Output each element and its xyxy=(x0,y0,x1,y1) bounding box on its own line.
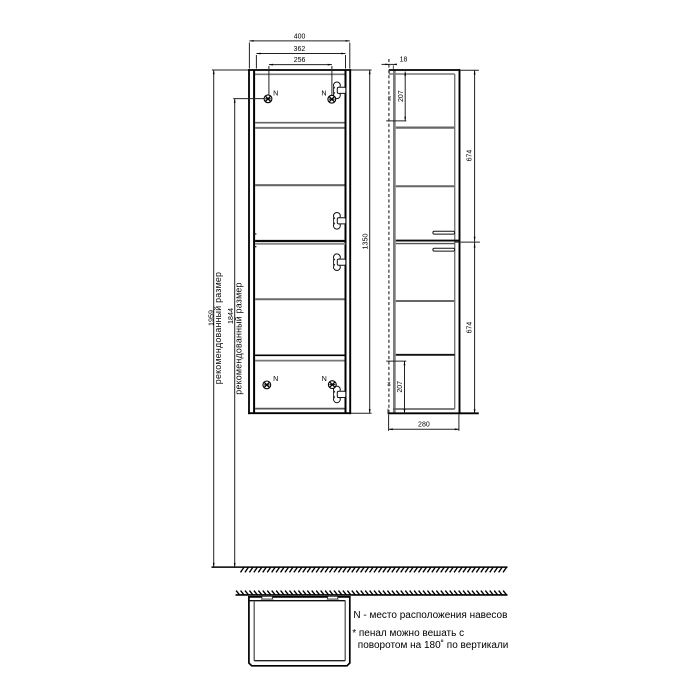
svg-text:N: N xyxy=(322,374,327,383)
svg-text:N: N xyxy=(273,374,278,383)
svg-text:N: N xyxy=(321,88,326,97)
svg-text:64: 64 xyxy=(387,95,392,101)
svg-text:674: 674 xyxy=(467,322,474,334)
svg-text:400: 400 xyxy=(294,33,306,40)
svg-text:207: 207 xyxy=(398,90,405,102)
svg-text:362: 362 xyxy=(294,46,306,53)
svg-text:рекомендованный размер: рекомендованный размер xyxy=(213,272,223,384)
svg-text:256: 256 xyxy=(294,57,306,64)
svg-text:* пенал можно вешать с: * пенал можно вешать с xyxy=(352,628,464,639)
svg-text:рекомендованный размер: рекомендованный размер xyxy=(233,282,243,394)
svg-text:N - место расположения навесов: N - место расположения навесов xyxy=(353,610,507,621)
svg-text:поворотом на 180˚ по вертикали: поворотом на 180˚ по вертикали xyxy=(358,639,509,651)
svg-text:18: 18 xyxy=(400,57,408,64)
svg-text:1350: 1350 xyxy=(360,234,369,250)
svg-text:674: 674 xyxy=(467,150,474,162)
svg-text:207: 207 xyxy=(397,381,404,393)
svg-text:64: 64 xyxy=(387,381,392,387)
svg-text:280: 280 xyxy=(418,422,430,429)
svg-text:N: N xyxy=(273,88,278,97)
